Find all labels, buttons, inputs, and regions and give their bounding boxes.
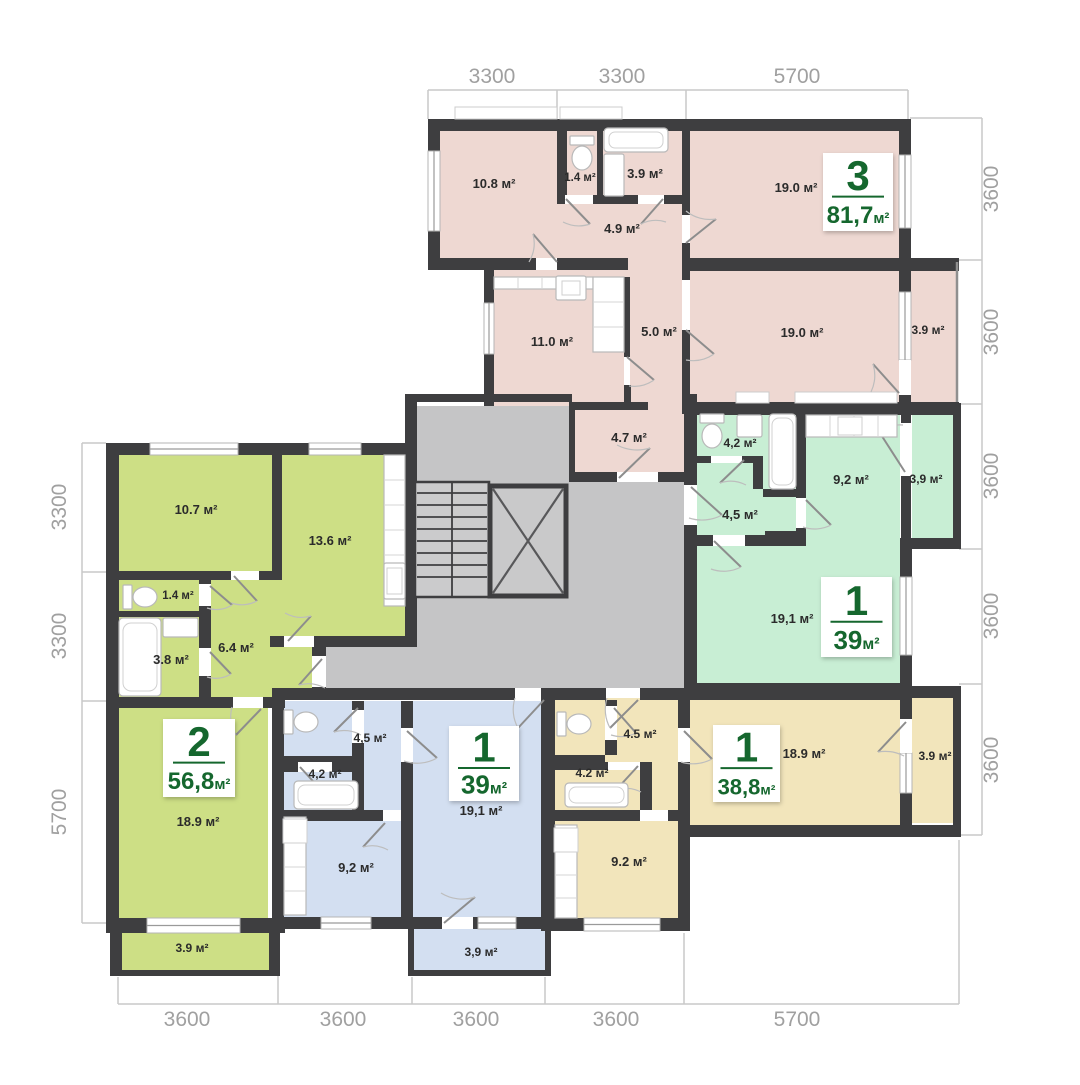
svg-text:11.0 м²: 11.0 м² (531, 334, 574, 349)
svg-text:19,1 м²: 19,1 м² (460, 803, 504, 818)
svg-text:3300: 3300 (469, 65, 516, 88)
svg-text:4,2 м²: 4,2 м² (309, 767, 342, 781)
svg-text:1: 1 (845, 577, 868, 624)
svg-text:9.2 м²: 9.2 м² (611, 854, 647, 869)
svg-text:3.9 м²: 3.9 м² (912, 323, 945, 337)
svg-text:3,9 м²: 3,9 м² (910, 472, 943, 486)
svg-text:3300: 3300 (48, 613, 71, 660)
svg-text:5.0 м²: 5.0 м² (641, 324, 677, 339)
svg-text:19.0 м²: 19.0 м² (775, 180, 819, 195)
svg-text:3: 3 (846, 152, 869, 199)
svg-text:5700: 5700 (774, 65, 821, 88)
svg-text:3600: 3600 (320, 1008, 367, 1031)
svg-text:1.4 м²: 1.4 м² (162, 590, 194, 602)
svg-text:4.5 м²: 4.5 м² (624, 727, 657, 741)
svg-text:19,1 м²: 19,1 м² (771, 611, 815, 626)
svg-text:3600: 3600 (980, 453, 1003, 500)
svg-text:4.2 м²: 4.2 м² (576, 766, 609, 780)
svg-text:5700: 5700 (48, 789, 71, 836)
svg-text:3600: 3600 (980, 166, 1003, 213)
svg-text:2: 2 (187, 718, 210, 765)
svg-text:18.9 м²: 18.9 м² (783, 746, 827, 761)
svg-text:3.9 м²: 3.9 м² (176, 941, 209, 955)
svg-text:3.8 м²: 3.8 м² (153, 652, 189, 667)
svg-text:9,2 м²: 9,2 м² (833, 472, 869, 487)
svg-text:1: 1 (472, 724, 495, 771)
svg-text:18.9 м²: 18.9 м² (177, 814, 221, 829)
svg-text:3.9 м²: 3.9 м² (627, 166, 663, 181)
svg-text:3300: 3300 (599, 65, 646, 88)
svg-text:5700: 5700 (774, 1008, 821, 1031)
svg-text:4,5 м²: 4,5 м² (354, 731, 387, 745)
svg-text:9,2 м²: 9,2 м² (338, 860, 374, 875)
svg-text:3300: 3300 (48, 484, 71, 531)
svg-text:6.4 м²: 6.4 м² (218, 640, 254, 655)
svg-text:10.7 м²: 10.7 м² (175, 502, 219, 517)
svg-text:4.7 м²: 4.7 м² (611, 430, 647, 445)
svg-text:1.4 м²: 1.4 м² (564, 172, 596, 184)
svg-text:3600: 3600 (164, 1008, 211, 1031)
svg-text:3,9 м²: 3,9 м² (465, 945, 498, 959)
svg-text:3600: 3600 (980, 593, 1003, 640)
svg-text:1: 1 (735, 724, 758, 771)
svg-text:19.0 м²: 19.0 м² (781, 325, 825, 340)
svg-text:4,5 м²: 4,5 м² (722, 507, 758, 522)
svg-text:3600: 3600 (980, 309, 1003, 356)
svg-text:13.6 м²: 13.6 м² (309, 533, 353, 548)
svg-text:4.9 м²: 4.9 м² (604, 221, 640, 236)
svg-text:3600: 3600 (593, 1008, 640, 1031)
svg-text:10.8 м²: 10.8 м² (473, 176, 517, 191)
svg-text:3600: 3600 (453, 1008, 500, 1031)
svg-text:4,2 м²: 4,2 м² (724, 436, 757, 450)
svg-text:3.9 м²: 3.9 м² (919, 749, 952, 763)
svg-text:3600: 3600 (980, 737, 1003, 784)
